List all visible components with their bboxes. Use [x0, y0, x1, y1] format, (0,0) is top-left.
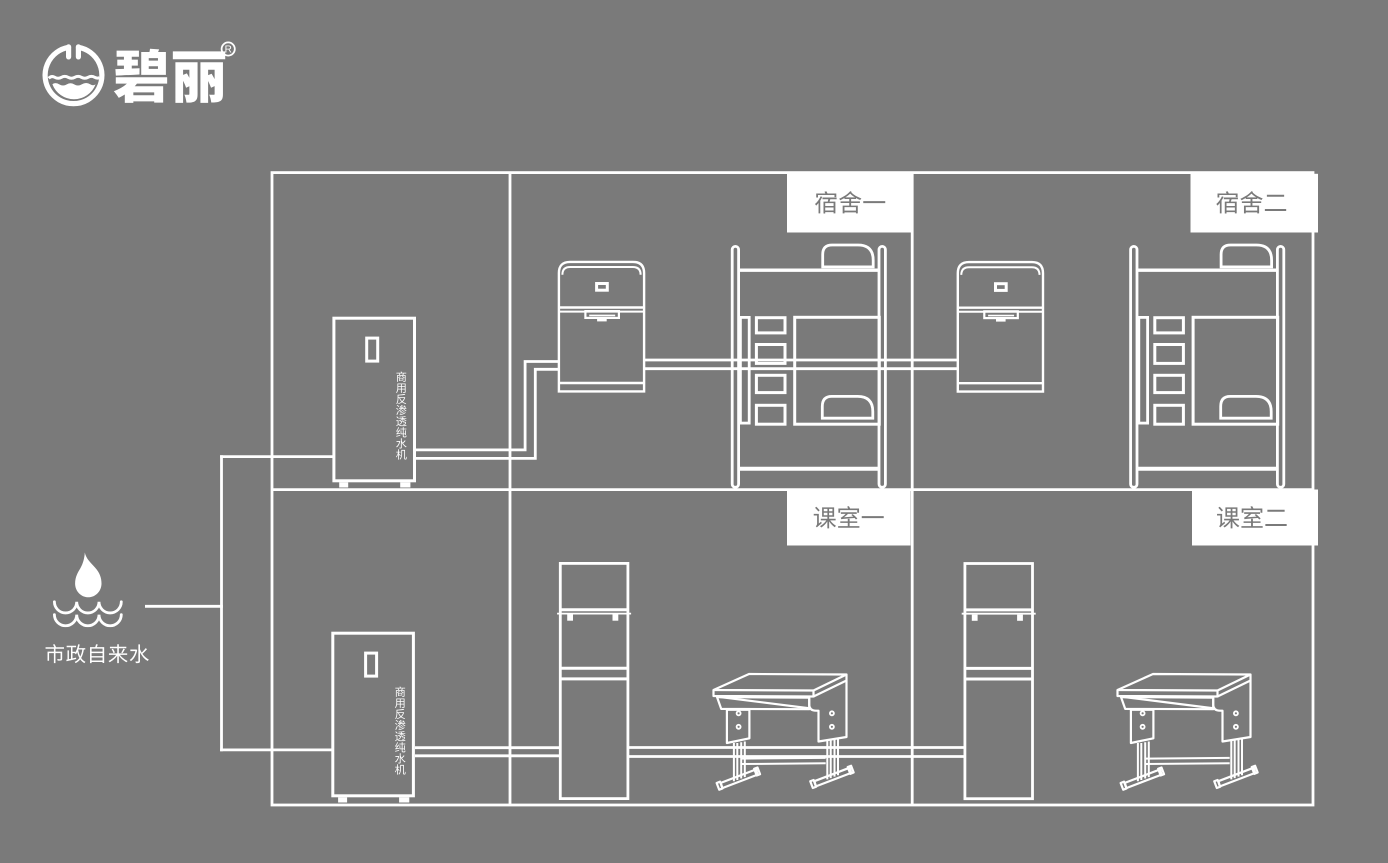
svg-text:R: R: [225, 45, 232, 56]
